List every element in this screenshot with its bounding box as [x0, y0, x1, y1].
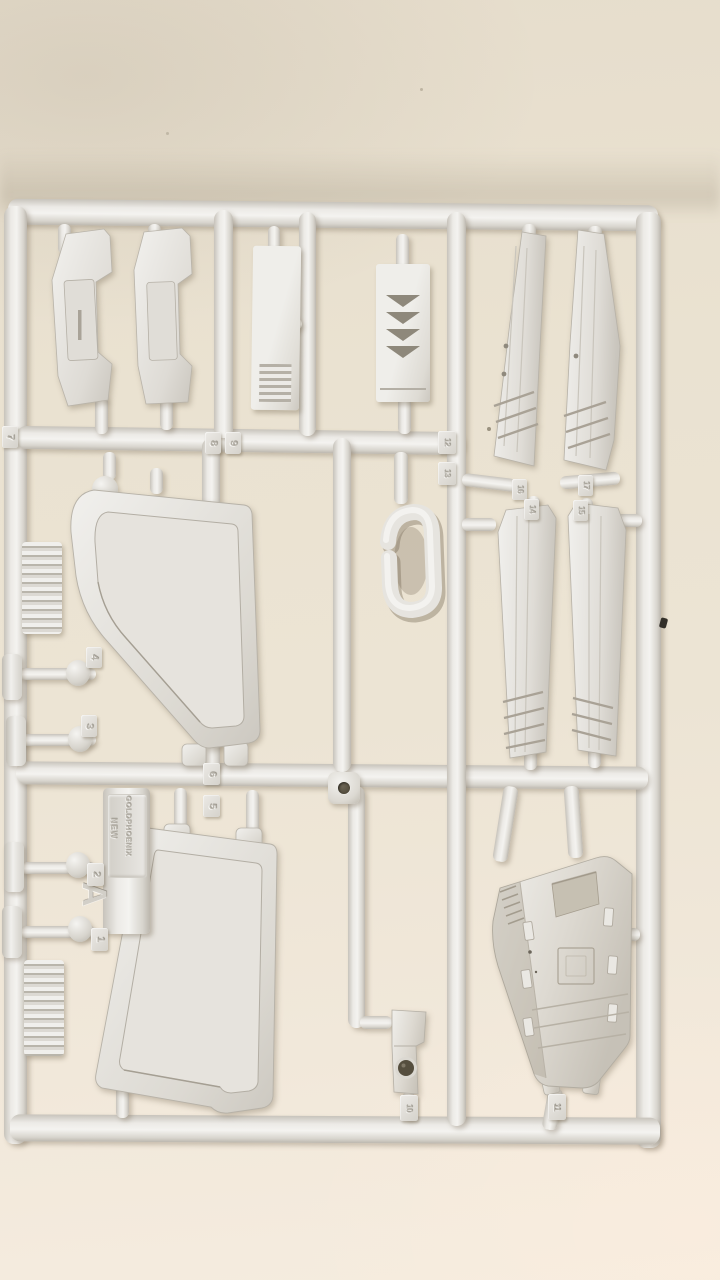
ejector-hole	[338, 782, 350, 794]
part-number-tag-13: 13	[438, 462, 456, 485]
blade-svg	[556, 500, 634, 764]
bracket-svg	[382, 1006, 434, 1104]
brand-word-goldphoenix: GOLDPHOENIX	[124, 796, 133, 857]
dust-speck	[487, 427, 491, 431]
arrow-notch-column	[376, 264, 430, 358]
tag-label: 9	[228, 440, 239, 446]
arrow-notch-icon	[386, 346, 420, 358]
tag-label: 8	[208, 440, 219, 446]
bracket-part	[382, 1006, 434, 1104]
runner-junction	[328, 772, 360, 804]
tag-label: 17	[581, 482, 590, 490]
tag-label: 2	[90, 872, 101, 878]
part-number-tag-1: 1	[91, 928, 108, 951]
part-number-tag-10: 10	[400, 1095, 418, 1121]
grille-slats	[259, 364, 292, 402]
panel-groove	[380, 388, 426, 390]
peg-part	[6, 716, 26, 766]
grille-panel-part	[251, 246, 301, 411]
runner-vertical-mid-2	[333, 438, 351, 772]
brand-plate: NEW GOLDPHOENIX A	[103, 788, 150, 934]
tag-label: 6	[206, 771, 217, 777]
fairing-half-svg	[124, 226, 200, 408]
arrow-notch-icon	[386, 295, 420, 307]
arrow-notch-icon	[386, 312, 420, 324]
fuselage-svg	[480, 844, 652, 1112]
kit-photo: NEW GOLDPHOENIX A 7 8 9 12 13 16 17 14 1…	[0, 0, 720, 1280]
tag-label: 7	[5, 434, 16, 440]
dust-speck	[166, 132, 169, 135]
u-clamp-part	[362, 496, 446, 628]
part-number-tag-17: 17	[578, 475, 593, 496]
part-number-tag-15: 15	[573, 500, 588, 521]
part-number-tag-14: 14	[524, 499, 539, 520]
wing-svg	[66, 816, 292, 1118]
part-number-tag-6: 6	[203, 763, 220, 785]
tag-label: 14	[527, 506, 536, 514]
arrow-panel-part	[376, 264, 430, 402]
part-number-tag-5: 5	[203, 795, 220, 817]
u-clamp-svg	[362, 496, 446, 628]
tag-label: 15	[576, 507, 585, 515]
fairing-half-part	[38, 226, 122, 410]
runner-vertical-top-1	[214, 210, 233, 438]
runner-vertical-main	[447, 212, 466, 1126]
tag-label: 10	[405, 1104, 414, 1112]
ribbed-block-part	[24, 960, 64, 1056]
part-number-tag-16: 16	[512, 479, 527, 500]
blade-part	[550, 226, 636, 478]
tag-label: 3	[84, 723, 95, 729]
tag-label: 11	[553, 1103, 562, 1110]
part-number-tag-8: 8	[205, 432, 221, 454]
brand-word-new: NEW	[109, 818, 118, 840]
part-number-tag-4: 4	[86, 647, 102, 668]
blade-svg	[550, 226, 636, 478]
fairing-half-svg	[38, 226, 122, 410]
arrow-notch-icon	[386, 329, 420, 341]
fairing-half-part	[124, 226, 200, 408]
tag-label: 16	[515, 486, 524, 494]
runner-vertical-bottom	[348, 786, 365, 1028]
peg-part	[4, 842, 24, 892]
tag-label: 13	[443, 470, 452, 478]
part-number-tag-7: 7	[2, 426, 18, 448]
tag-label: 4	[89, 655, 100, 661]
part-number-tag-12: 12	[438, 431, 456, 454]
debris-speck	[659, 617, 668, 628]
peg-part	[2, 654, 22, 700]
part-number-tag-3: 3	[81, 715, 97, 737]
fuselage-part	[480, 844, 652, 1112]
dust-speck	[420, 88, 423, 91]
part-number-tag-2: 2	[87, 863, 104, 886]
wing-part	[66, 816, 292, 1118]
part-number-tag-11: 11	[548, 1094, 566, 1120]
peg-part	[2, 906, 22, 958]
tag-label: 5	[206, 803, 217, 809]
part-number-tag-9: 9	[225, 432, 241, 454]
tag-label: 1	[94, 937, 105, 943]
runner-stub	[461, 473, 516, 492]
tag-label: 12	[443, 439, 452, 447]
blade-part	[556, 500, 634, 764]
